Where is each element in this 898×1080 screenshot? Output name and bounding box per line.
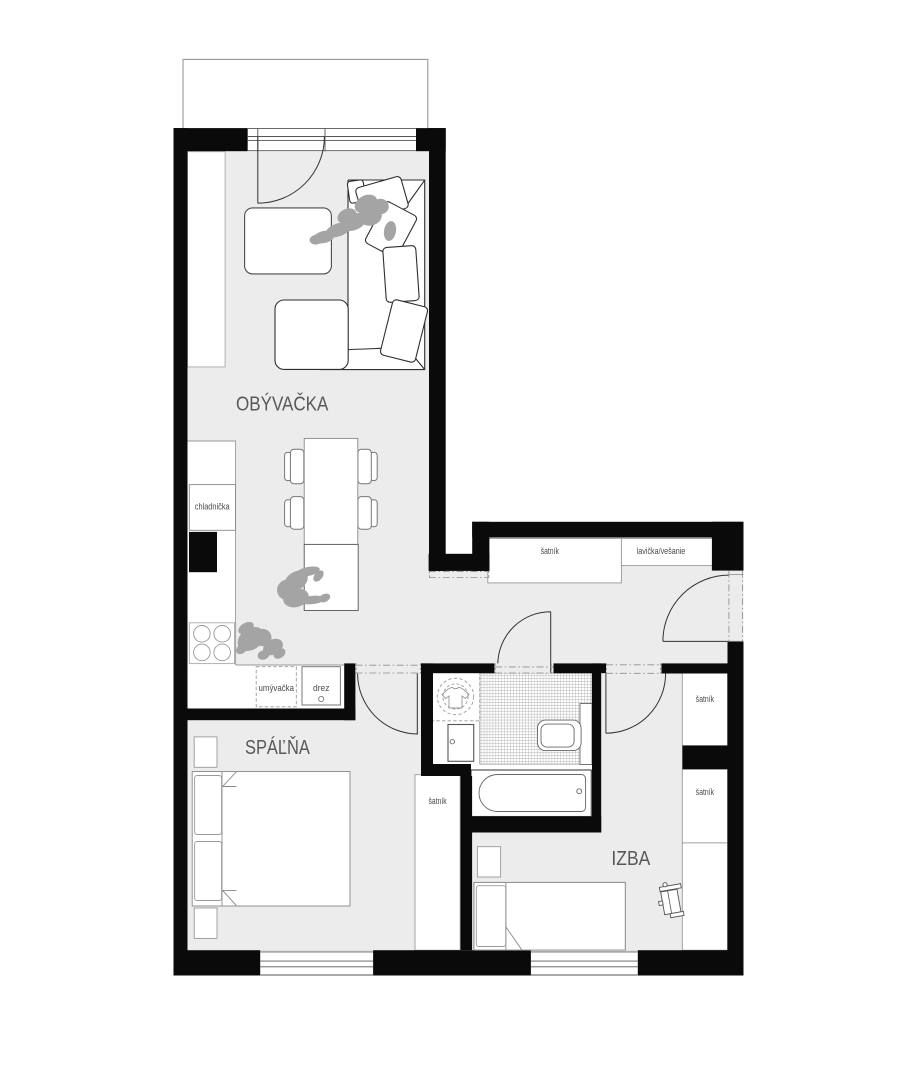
svg-text:drez: drez: [313, 683, 330, 693]
svg-text:chladnička: chladnička: [195, 501, 230, 511]
svg-text:šatník: šatník: [429, 796, 448, 806]
svg-text:lavička/vešanie: lavička/vešanie: [637, 546, 686, 556]
svg-text:šatník: šatník: [696, 694, 715, 704]
svg-text:IZBA: IZBA: [611, 848, 650, 870]
svg-text:umývačka: umývačka: [259, 683, 295, 693]
svg-text:OBÝVAČKA: OBÝVAČKA: [236, 392, 329, 415]
svg-text:šatník: šatník: [541, 546, 560, 556]
svg-text:SPÁĽŇA: SPÁĽŇA: [245, 736, 310, 759]
svg-text:šatník: šatník: [696, 787, 715, 797]
